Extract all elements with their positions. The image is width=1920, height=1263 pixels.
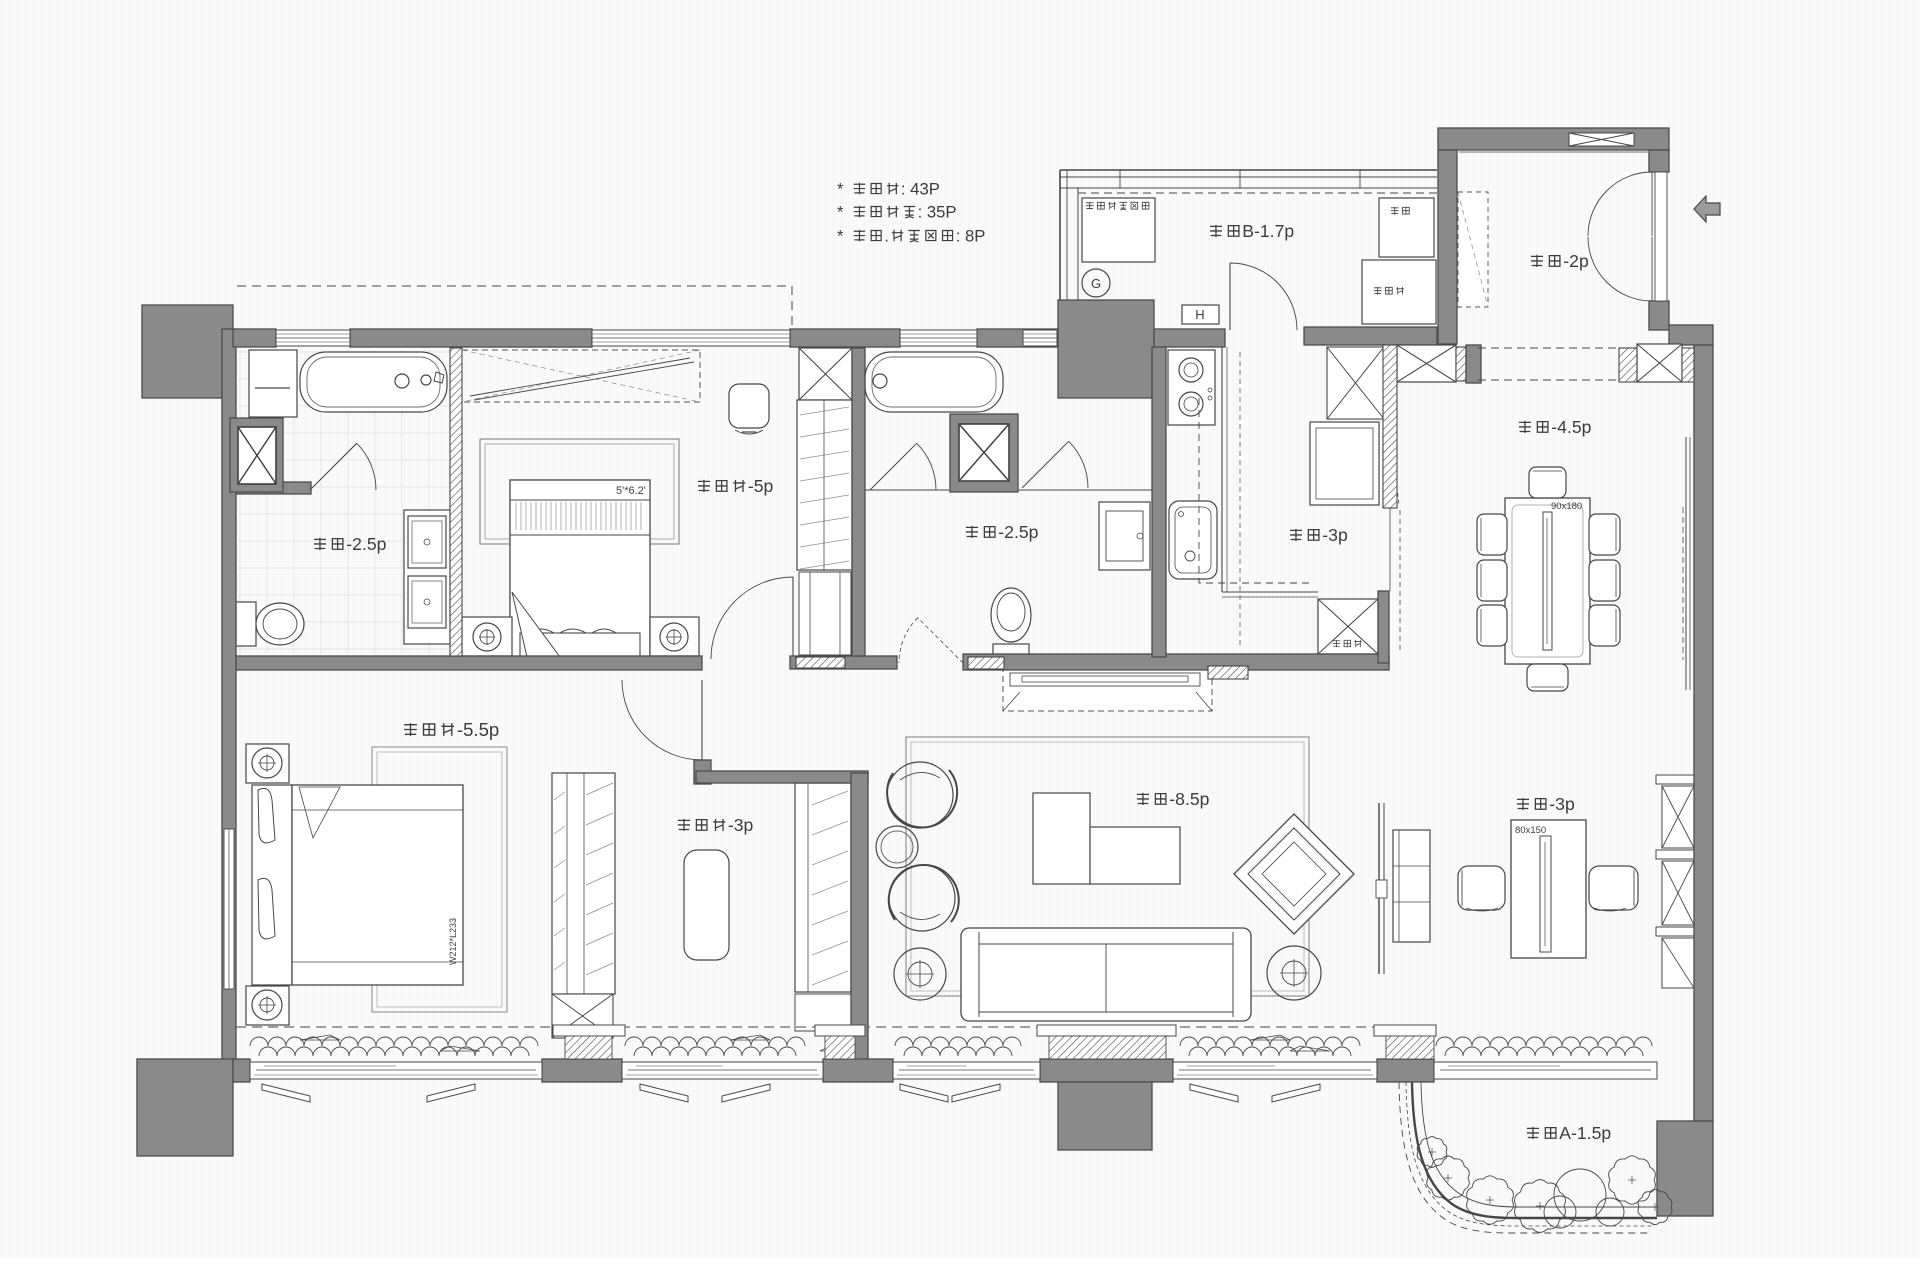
svg-text:W212*L233: W212*L233 — [448, 918, 458, 965]
svg-text:-5.5p: -5.5p — [457, 719, 499, 740]
svg-text:A-1.5p: A-1.5p — [1559, 1123, 1611, 1143]
svg-text:-3p: -3p — [1322, 525, 1348, 545]
svg-text:: 8P: : 8P — [956, 226, 986, 245]
svg-text:-2.5p: -2.5p — [998, 522, 1038, 542]
svg-text:-2.5p: -2.5p — [346, 534, 386, 554]
svg-text:H: H — [1195, 307, 1204, 322]
svg-text:: 35P: : 35P — [918, 202, 957, 221]
svg-text:*: * — [837, 179, 844, 198]
svg-text:-3p: -3p — [1549, 794, 1575, 814]
svg-text:B-1.7p: B-1.7p — [1242, 221, 1294, 241]
svg-text:*: * — [837, 202, 844, 221]
svg-text:-8.5p: -8.5p — [1169, 789, 1209, 809]
svg-text:90x180: 90x180 — [1551, 501, 1582, 512]
svg-text:5'*6.2': 5'*6.2' — [616, 485, 646, 497]
svg-text:-2p: -2p — [1563, 251, 1589, 271]
svg-text:G: G — [1091, 276, 1101, 291]
svg-text:-5p: -5p — [748, 476, 774, 496]
svg-text:.: . — [884, 226, 889, 245]
svg-text:*: * — [837, 226, 844, 245]
svg-text:-4.5p: -4.5p — [1551, 417, 1591, 437]
svg-text:-3p: -3p — [728, 815, 754, 835]
svg-text:: 43P: : 43P — [901, 179, 940, 198]
svg-text:80x150: 80x150 — [1515, 825, 1546, 836]
